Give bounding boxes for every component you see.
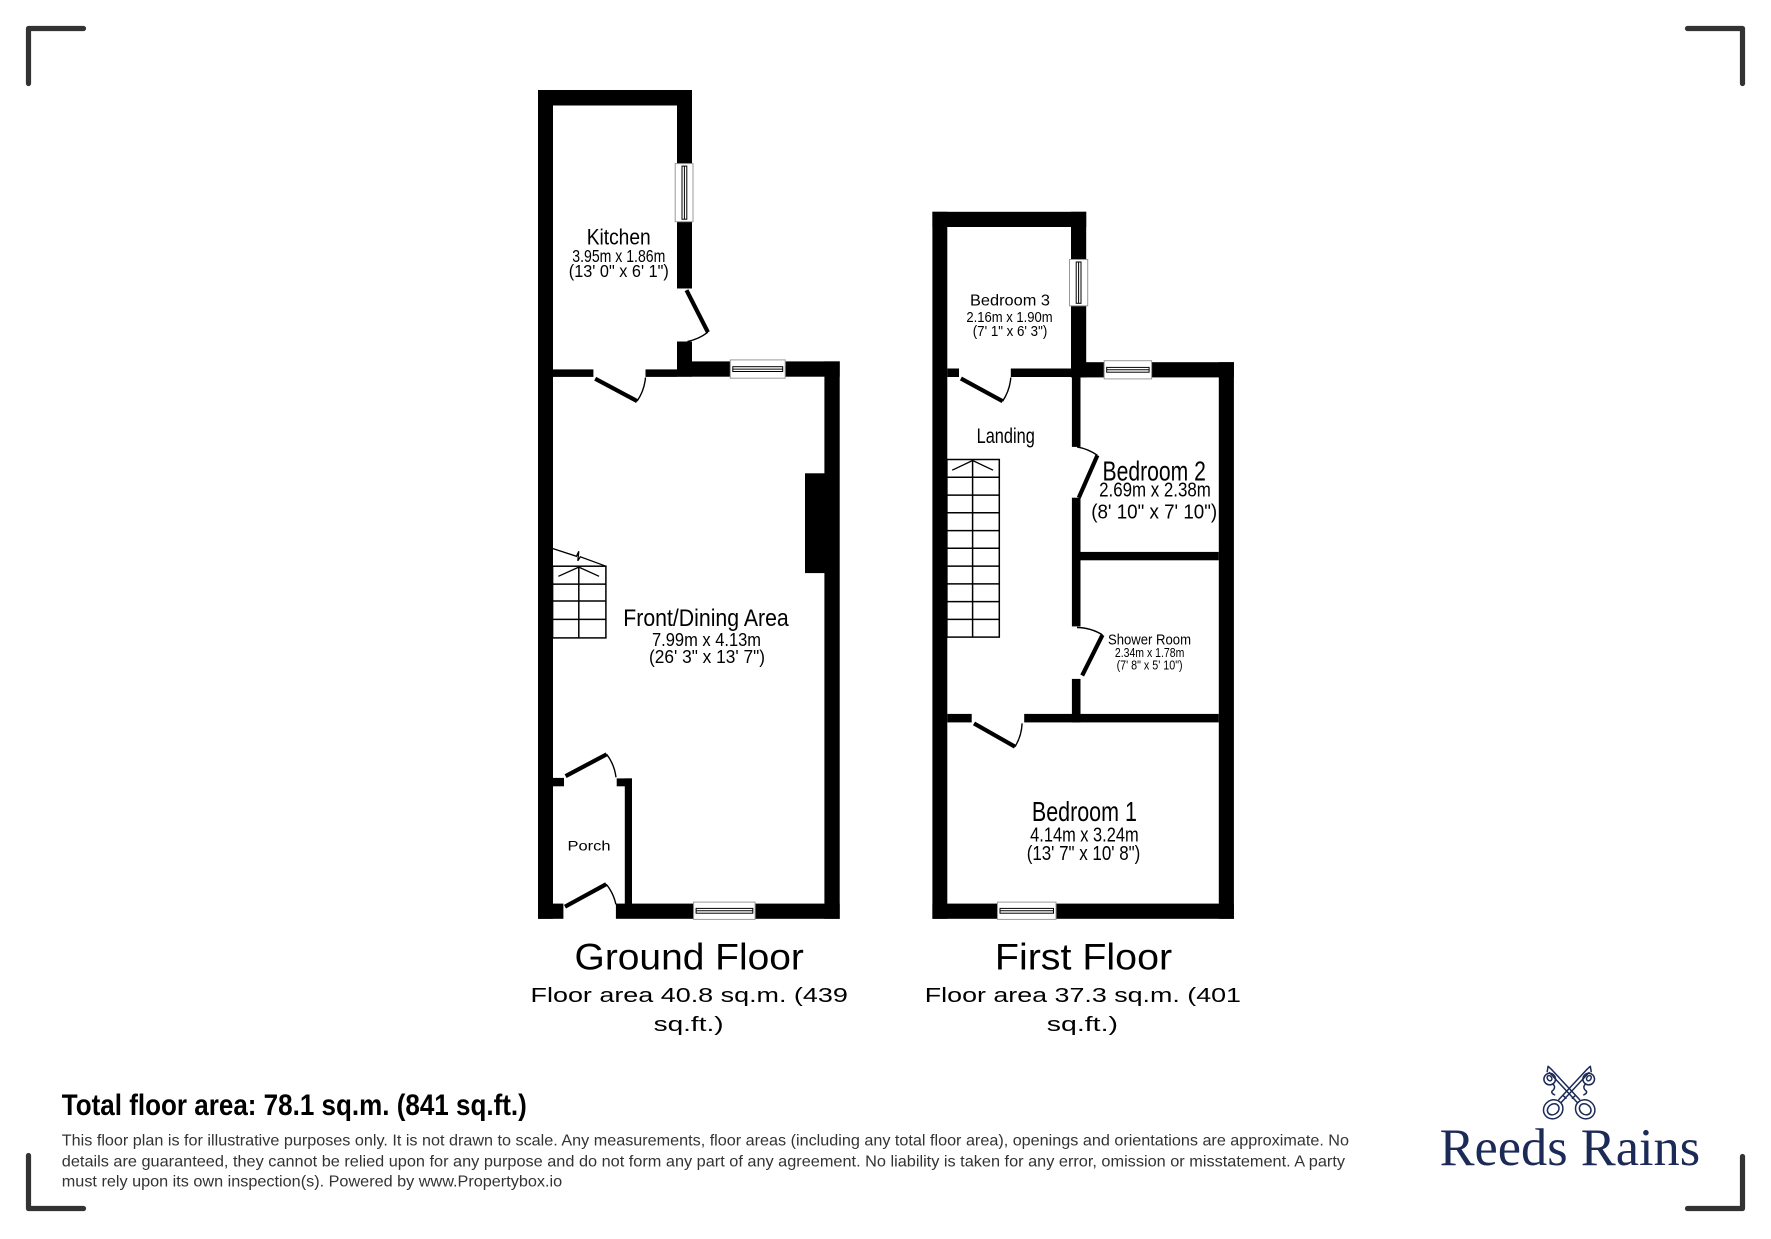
svg-text:(7' 1" x 6' 3"): (7' 1" x 6' 3") [973,324,1048,340]
svg-text:2.69m x 2.38m: 2.69m x 2.38m [1099,480,1211,502]
svg-text:details are guaranteed, they c: details are guaranteed, they cannot be r… [62,1153,1345,1170]
svg-text:Porch: Porch [568,837,611,853]
svg-text:(13' 7" x 10' 8"): (13' 7" x 10' 8") [1027,843,1141,865]
svg-text:(13' 0" x 6' 1"): (13' 0" x 6' 1") [569,261,669,281]
svg-text:(7' 8" x 5' 10"): (7' 8" x 5' 10") [1117,658,1183,672]
svg-text:First Floor: First Floor [995,935,1172,977]
svg-text:sq.ft.): sq.ft.) [1047,1014,1118,1036]
svg-text:This floor plan is for illustr: This floor plan is for illustrative purp… [62,1132,1349,1149]
svg-text:Bedroom 3: Bedroom 3 [970,292,1050,309]
svg-text:(26' 3" x 13' 7"): (26' 3" x 13' 7") [649,647,765,667]
svg-text:Bedroom 1: Bedroom 1 [1032,796,1137,827]
svg-text:sq.ft.): sq.ft.) [654,1014,724,1036]
svg-text:Ground Floor: Ground Floor [575,935,804,977]
svg-text:must rely upon its own inspect: must rely upon its own inspection(s). Po… [62,1174,562,1191]
svg-text:Landing: Landing [977,424,1035,448]
svg-text:Floor area 40.8 sq.m. (439: Floor area 40.8 sq.m. (439 [531,985,848,1007]
svg-text:Floor area 37.3 sq.m. (401: Floor area 37.3 sq.m. (401 [925,985,1241,1007]
svg-text:Total floor area: 78.1 sq.m. (: Total floor area: 78.1 sq.m. (841 sq.ft.… [62,1089,527,1122]
svg-text:Front/Dining Area: Front/Dining Area [623,605,789,632]
svg-text:(8' 10" x 7' 10"): (8' 10" x 7' 10") [1091,502,1217,524]
svg-text:Reeds Rains: Reeds Rains [1440,1119,1701,1177]
